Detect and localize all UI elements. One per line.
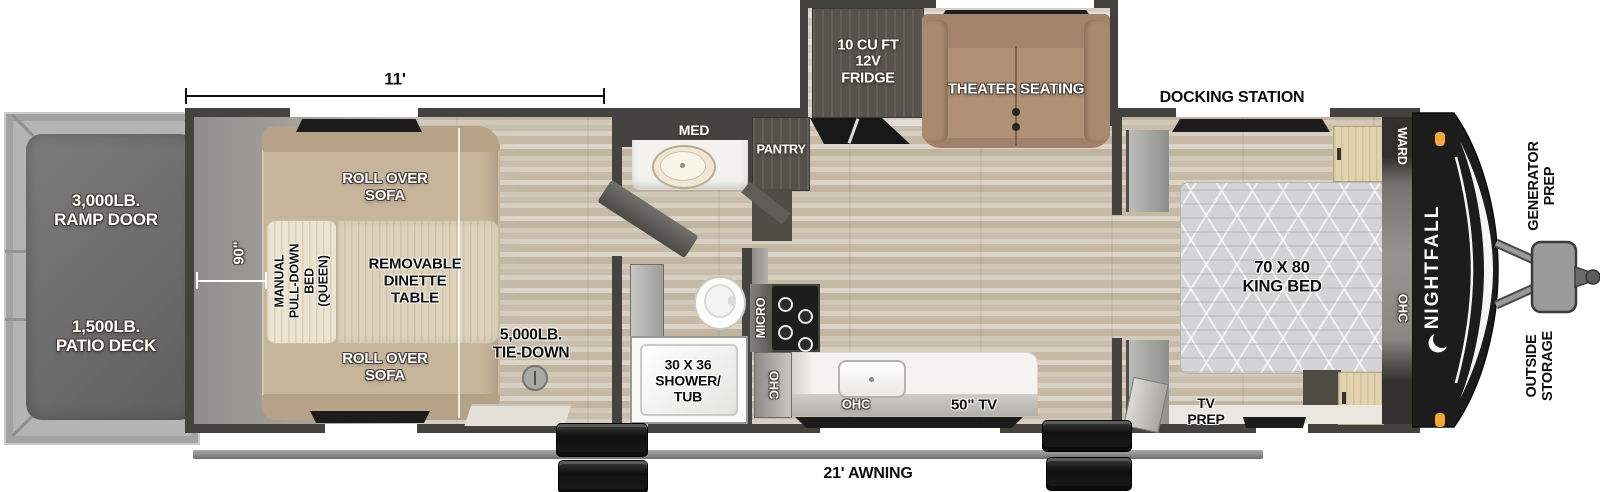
dimension-tick <box>196 272 198 289</box>
burner <box>798 309 813 324</box>
burner <box>778 325 793 340</box>
entry-steps-main-lower <box>1046 457 1132 491</box>
rear-entry-counter <box>464 404 571 426</box>
burner <box>798 337 813 352</box>
dinette-table-label: REMOVABLE DINETTE TABLE <box>369 257 462 308</box>
awning-label: 21' AWNING <box>823 465 912 483</box>
dimension-tick-right <box>603 88 605 104</box>
front-cap: NIGHTFALL <box>1412 95 1600 445</box>
hitch-ball <box>1586 270 1600 284</box>
tie-down-anchor-icon <box>522 365 548 391</box>
generator-prep-label: GENERATOR PREP <box>1527 141 1559 231</box>
garage-width-label: 90" <box>232 241 249 264</box>
tie-down-anchor-slot <box>534 371 536 385</box>
garage-window <box>296 119 422 132</box>
bedroom-wall-lower <box>1112 338 1122 424</box>
garage-length-label: 11' <box>384 69 405 88</box>
bedroom-pocket-door-top <box>1126 130 1169 212</box>
brand-logo-text: NIGHTFALL <box>1422 205 1443 330</box>
garage-bath-wall-lower <box>612 256 622 424</box>
theater-armrest-left <box>922 20 948 142</box>
theater-backrest <box>922 14 1110 48</box>
bedroom-ohc-label: OHC <box>1395 294 1410 322</box>
entry-steps-main-upper <box>1042 420 1132 452</box>
kitchen-sink-drain <box>869 377 874 382</box>
dimension-tick-left <box>185 88 187 104</box>
kitchen-ohc-side-label: OHC <box>766 371 781 399</box>
microwave-label: MICRO <box>754 298 768 339</box>
king-bed-label: 70 X 80 KING BED <box>1242 258 1321 295</box>
bedroom-window <box>1172 119 1330 132</box>
patio-deck-label: 1,500LB. PATIO DECK <box>56 317 156 355</box>
pull-down-bed-label: MANUAL PULL-DOWN BED (QUEEN) <box>273 244 332 319</box>
toilet-flush <box>728 296 736 306</box>
theater-seating-label: THEATER SEATING <box>948 82 1084 99</box>
sink-drain <box>680 163 685 168</box>
kitchen-counter-shade-bottom <box>792 394 1038 416</box>
wardrobe-label: WARD <box>1395 127 1409 164</box>
tie-down-label: 5,000LB. TIE-DOWN <box>493 327 570 362</box>
ramp-door-panel <box>26 134 196 420</box>
kitchen-window-tv-bar <box>795 417 1023 428</box>
pantry-label: PANTRY <box>757 143 806 158</box>
ramp-door-label: 3,000LB. RAMP DOOR <box>54 191 158 229</box>
bedroom-wall-upper <box>1112 117 1122 215</box>
kitchen-ohc-counter-label: OHC <box>842 398 870 413</box>
garage-rear-window <box>310 411 430 423</box>
theater-armrest-right <box>1084 20 1110 142</box>
nightstand-handle <box>1342 392 1346 404</box>
dimension-tick <box>265 272 267 289</box>
propane-cover <box>1532 242 1576 312</box>
bedroom-tv-bar <box>1243 417 1306 428</box>
garage-window-gap <box>290 108 418 117</box>
garage-length-dimension-line <box>186 95 604 97</box>
slideout-window-gap <box>936 0 1094 8</box>
garage-width-dimension-line <box>197 280 267 282</box>
kitchen-tv-label: 50" TV <box>951 398 997 415</box>
roll-over-sofa-top-label: ROLL OVER SOFA <box>342 171 427 205</box>
burner <box>778 297 793 312</box>
bathroom-door-leaf <box>630 264 664 346</box>
kitchen-window-gap <box>820 428 1000 433</box>
refrigerator-label: 10 CU FT 12V FRIDGE <box>837 37 898 86</box>
med-cabinet-label: MED <box>679 123 710 139</box>
marker-light-top <box>1435 132 1445 146</box>
hitch-a-frame-inner <box>1496 243 1536 305</box>
shower-tub-label: 30 X 36 SHOWER/ TUB <box>655 357 721 404</box>
marker-light-bottom <box>1435 413 1445 427</box>
theater-cupholder <box>1012 108 1020 116</box>
deck-edge-divider <box>5 318 27 321</box>
bedroom-window-gap <box>1176 108 1330 117</box>
entry-steps-rear-lower <box>558 460 648 492</box>
theater-cupholder <box>1012 123 1020 131</box>
outside-storage-label: OUTSIDE STORAGE <box>1525 331 1557 401</box>
roll-over-sofa-bottom-label: ROLL OVER SOFA <box>342 351 427 385</box>
garage-rear-window-gap <box>325 424 417 433</box>
deck-edge-divider <box>5 250 27 253</box>
tv-prep-label: TV PREP <box>1187 396 1224 428</box>
nightfall-floorplan: 11' 3,000LB. RAMP DOOR 1,500LB. PATIO DE… <box>0 0 1600 492</box>
entry-steps-rear-upper <box>556 423 648 457</box>
nightstand-handle <box>1337 148 1341 160</box>
docking-station-label: DOCKING STATION <box>1160 89 1305 107</box>
